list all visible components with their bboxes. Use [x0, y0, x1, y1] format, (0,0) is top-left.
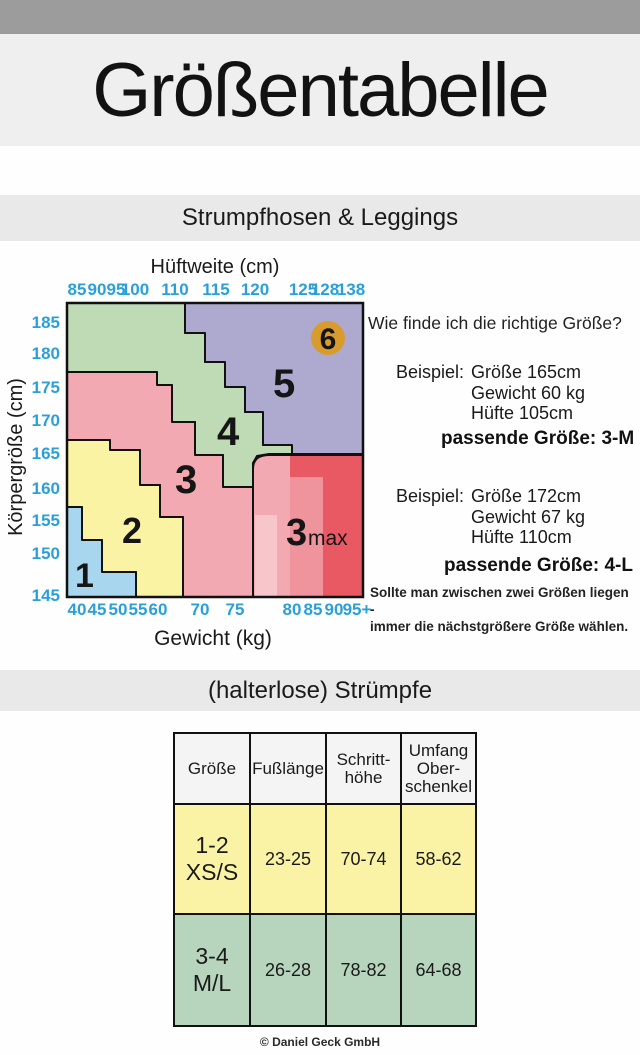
tick-top-120: 120	[241, 280, 269, 299]
tick-left-150: 150	[32, 544, 60, 563]
tick-bottom-60: 60	[149, 600, 168, 619]
example-1: Beispiel: Größe 165cmGewicht 60 kgHüfte …	[396, 362, 585, 424]
page-root: Größentabelle Strumpfhosen & Leggings 12…	[0, 0, 640, 1055]
size-chart-svg: 123453max6859095100110115120125128138404…	[0, 245, 372, 651]
example-2-label: Beispiel:	[396, 486, 471, 548]
cell-size: 3-4M/L	[174, 914, 250, 1026]
tick-left-170: 170	[32, 411, 60, 430]
example-2: Beispiel: Größe 172cmGewicht 67 kgHüfte …	[396, 486, 585, 548]
tick-top-138: 138	[337, 280, 365, 299]
region-label-3: 3	[175, 458, 197, 502]
tick-bottom-75: 75	[226, 600, 245, 619]
stockings-size-table: Größe Fußlänge Schritt-höhe UmfangOber-s…	[173, 732, 477, 1027]
axis-title-gewicht: Gewicht (kg)	[154, 627, 272, 650]
tick-bottom-50: 50	[109, 600, 128, 619]
top-gray-bar	[0, 0, 640, 34]
cell-umfang: 58-62	[401, 804, 476, 914]
region-label-1: 1	[75, 557, 94, 595]
region-label-max: max	[308, 527, 348, 550]
tick-left-145: 145	[32, 586, 60, 605]
tick-bottom-80: 80	[283, 600, 302, 619]
tick-top-110: 110	[161, 280, 188, 299]
cell-umfang: 64-68	[401, 914, 476, 1026]
tick-left-185: 185	[32, 313, 60, 332]
tick-left-180: 180	[32, 344, 60, 363]
table-header-row: Größe Fußlänge Schritt-höhe UmfangOber-s…	[174, 733, 476, 804]
tick-top-85: 85	[68, 280, 87, 299]
section-header-label: (halterlose) Strümpfe	[208, 677, 432, 705]
region-label-3: 3	[286, 512, 307, 554]
cell-schritthoehe: 78-82	[326, 914, 401, 1026]
page-title: Größentabelle	[92, 47, 548, 134]
example-1-label: Beispiel:	[396, 362, 471, 424]
example-2-result: passende Größe: 4-L	[444, 555, 633, 577]
tick-bottom-70: 70	[191, 600, 210, 619]
shade-overlay	[255, 515, 277, 596]
table-row: 1-2XS/S 23-25 70-74 58-62	[174, 804, 476, 914]
tick-left-175: 175	[32, 378, 60, 397]
col-header-fusslaenge: Fußlänge	[250, 733, 326, 804]
plot-area: 123453max6	[67, 303, 363, 597]
tick-bottom-85: 85	[304, 600, 323, 619]
region-label-2: 2	[122, 510, 142, 551]
tick-top-90: 90	[88, 280, 107, 299]
example-1-result: passende Größe: 3-M	[441, 428, 634, 450]
cell-schritthoehe: 70-74	[326, 804, 401, 914]
badge-label: 6	[320, 323, 337, 356]
axis-title-koerpergroesse: Körpergröße (cm)	[5, 378, 27, 536]
col-header-umfang: UmfangOber-schenkel	[401, 733, 476, 804]
section-header-strumpfhosen: Strumpfhosen & Leggings	[0, 195, 640, 241]
region-label-4: 4	[217, 410, 240, 454]
tick-bottom-45: 45	[88, 600, 107, 619]
tick-bottom-95+: 95+	[343, 600, 372, 619]
region-label-5: 5	[273, 362, 295, 406]
copyright-text: © Daniel Geck GmbH	[0, 1035, 640, 1049]
example-1-lines: Größe 165cmGewicht 60 kgHüfte 105cm	[471, 362, 585, 424]
tick-bottom-55: 55	[129, 600, 148, 619]
tick-top-115: 115	[202, 280, 229, 299]
tick-bottom-40: 40	[68, 600, 87, 619]
tick-left-160: 160	[32, 479, 60, 498]
cell-size: 1-2XS/S	[174, 804, 250, 914]
tick-top-128: 128	[311, 280, 339, 299]
axis-title-hueftweite: Hüftweite (cm)	[151, 256, 280, 278]
tick-left-165: 165	[32, 444, 60, 463]
table-row: 3-4M/L 26-28 78-82 64-68	[174, 914, 476, 1026]
section-header-label: Strumpfhosen & Leggings	[182, 204, 458, 232]
col-header-groesse: Größe	[174, 733, 250, 804]
tick-bottom-90: 90	[325, 600, 344, 619]
title-band: Größentabelle	[0, 34, 640, 146]
tick-left-155: 155	[32, 511, 60, 530]
example-2-lines: Größe 172cmGewicht 67 kgHüfte 110cm	[471, 486, 585, 548]
section-header-struempfe: (halterlose) Strümpfe	[0, 670, 640, 711]
tick-top-100: 100	[121, 280, 149, 299]
cell-fusslaenge: 23-25	[250, 804, 326, 914]
guide-heading: Wie finde ich die richtige Größe?	[368, 313, 636, 334]
cell-fusslaenge: 26-28	[250, 914, 326, 1026]
col-header-schritthoehe: Schritt-höhe	[326, 733, 401, 804]
guide-note: Sollte man zwischen zwei Größen liegen -…	[370, 584, 634, 635]
